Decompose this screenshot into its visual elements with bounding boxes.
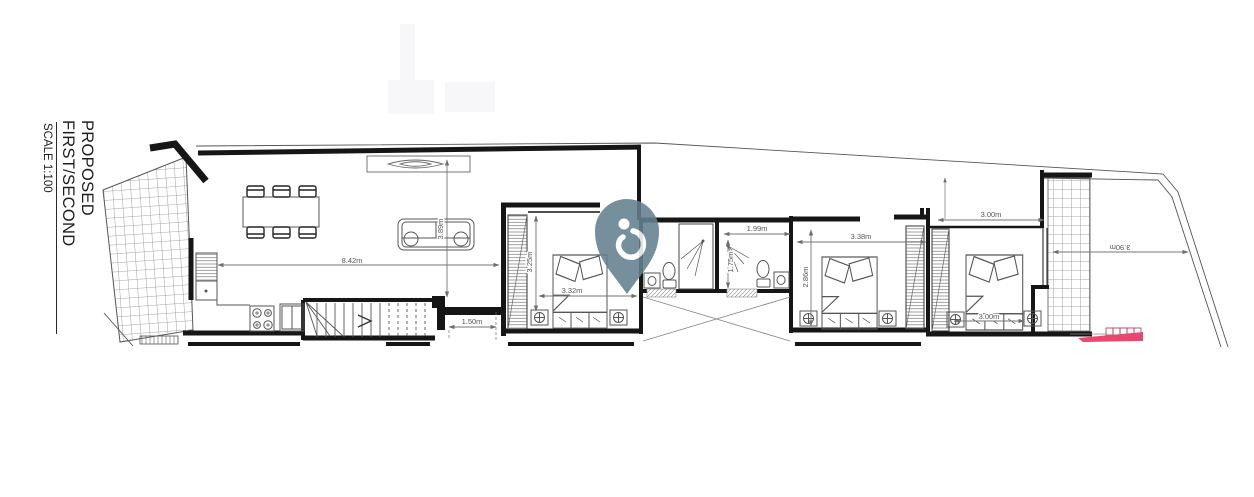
location-pin-watermark: [595, 199, 659, 294]
nightstand-lamp: [531, 310, 548, 325]
dishwasher: [280, 304, 304, 331]
dining-chairs: [247, 186, 316, 238]
floor-plan-page: PROPOSED FIRST/SECOND SCALE 1:100: [0, 0, 1254, 497]
floor-plan-svg: 8.42m 3.89m 1.50m 3.25m 3.32m 1.99m 1.75…: [0, 0, 1254, 497]
dim-label-hall-width: 1.50m: [462, 317, 483, 326]
plan-scale-label: SCALE 1:100: [41, 123, 53, 243]
plan-title: PROPOSED FIRST/SECOND: [58, 120, 96, 333]
nightstand-lamp: [610, 310, 627, 325]
washbasin: [644, 273, 660, 288]
dim-label-living-depth: 3.89m: [436, 219, 445, 240]
nightstand-lamp: [879, 311, 896, 326]
dim-label-bedroom2-width: 3.38m: [851, 232, 872, 241]
dining-table: [243, 186, 319, 238]
nightstand-lamp: [800, 311, 817, 326]
washbasin: [774, 272, 789, 288]
dim-label-living-width: 8.42m: [342, 256, 363, 265]
location-pin-icon: [595, 199, 659, 294]
toilet: [663, 263, 675, 280]
dim-label-bedroom3-bed-width: 3.00m: [979, 312, 1000, 321]
terrace-right: [1048, 178, 1090, 331]
stove: [250, 306, 274, 331]
bedroom-2: [800, 226, 924, 329]
dim-label-bedroom2-depth: 2.86m: [801, 267, 810, 288]
dim-label-bedroom1-depth: 3.25m: [525, 252, 534, 273]
title-underline: [56, 122, 57, 334]
dim-label-bedroom3-width: 3.00m: [981, 210, 1002, 219]
nightstand-lamp: [947, 312, 964, 327]
bed-2: [822, 257, 877, 329]
dim-label-bathroom2-width: 1.99m: [747, 224, 768, 233]
void-cross: [643, 297, 790, 341]
dim-label-rear-terrace-width: 3.90m: [1110, 243, 1131, 252]
stairs-direction-arrow: [358, 315, 371, 327]
bathroom-2: [727, 245, 790, 289]
dim-label-bathroom2-depth: 1.75m: [726, 252, 735, 273]
ceiling-vent: [367, 156, 470, 172]
toilet: [757, 261, 769, 278]
kitchen-sink-drainer: [196, 253, 217, 281]
nightstand-lamp: [1024, 311, 1041, 326]
stairs: [306, 302, 425, 337]
faint-watermark-blocks: [388, 24, 495, 114]
dim-label-bedroom1-width: 3.32m: [562, 286, 583, 295]
